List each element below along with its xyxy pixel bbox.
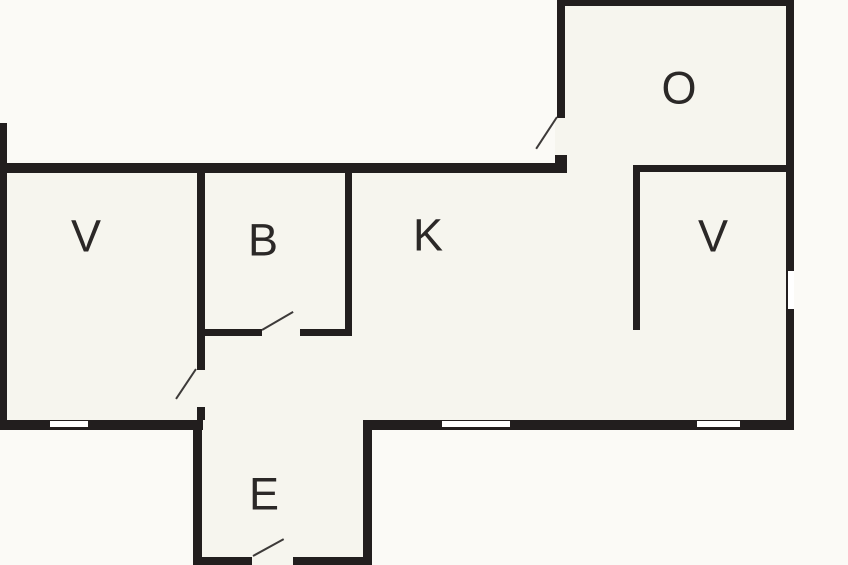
o-top-wall: [557, 0, 794, 6]
e-right-wall: [363, 420, 372, 565]
b-left-wall: [197, 173, 205, 370]
floor-plan: VBKOVE: [0, 0, 848, 565]
b-bottom-wall-right: [300, 329, 352, 336]
e-bottom-wall-left: [193, 557, 252, 565]
room-label-v-4: V: [698, 214, 728, 259]
window-k-bottom: [442, 421, 510, 427]
o-left-wall-upper: [557, 0, 565, 118]
top-wall-main: [0, 163, 567, 173]
e-left-wall: [193, 420, 202, 565]
right-wall: [786, 0, 794, 430]
b-left-wall-stub: [197, 407, 205, 420]
window-right-wall: [788, 271, 794, 309]
room-label-e-5: E: [249, 472, 279, 517]
room-label-k-2: K: [413, 213, 443, 258]
window-v2-bottom: [697, 421, 740, 427]
bottom-wall-left: [0, 420, 203, 430]
room-label-b-1: B: [248, 218, 278, 263]
v2-left-wall: [633, 165, 640, 330]
e-bottom-wall-right: [293, 557, 372, 565]
o-left-wall-stub: [555, 155, 567, 173]
v2-top-wall: [633, 165, 786, 172]
e-extension: [193, 420, 372, 565]
door-opening-b: [262, 328, 300, 337]
door-opening-o: [555, 118, 567, 155]
room-label-o-3: O: [661, 66, 696, 111]
b-right-wall: [345, 173, 352, 336]
window-v1-bottom: [50, 421, 88, 427]
main-band: [0, 163, 794, 430]
b-bottom-wall-left: [197, 329, 262, 336]
door-opening-e: [252, 556, 293, 565]
door-opening-v1: [196, 370, 207, 407]
room-label-v-0: V: [71, 214, 101, 259]
